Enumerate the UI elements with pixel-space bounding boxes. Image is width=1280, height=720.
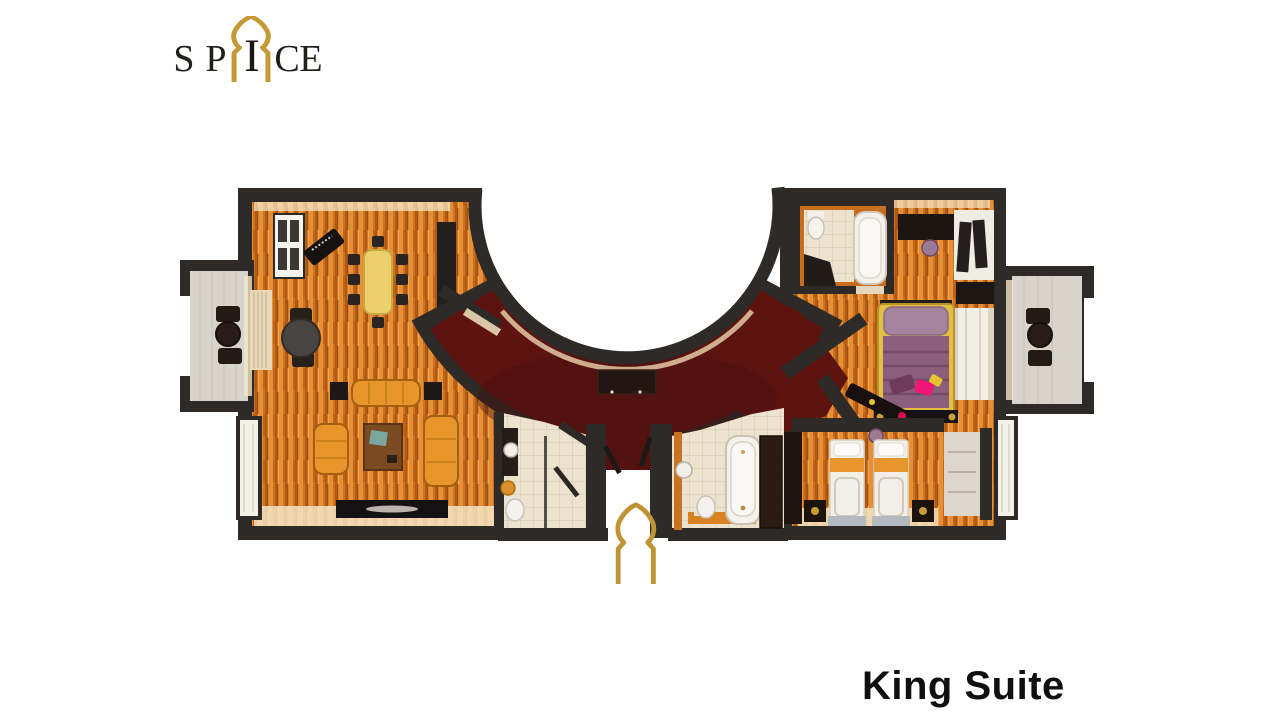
- balcony-right: [1004, 266, 1098, 414]
- desk: [898, 214, 956, 240]
- sink: [504, 443, 518, 457]
- closet: [944, 428, 992, 520]
- sink: [676, 462, 692, 478]
- balcony-chair: [216, 306, 240, 322]
- balcony-door-window: [952, 308, 994, 400]
- side-table: [424, 382, 442, 400]
- toilet: [506, 499, 524, 521]
- suite-name-label: King Suite: [862, 664, 1065, 709]
- twin-bed-2: [872, 440, 910, 526]
- sofa: [424, 416, 458, 486]
- page: S P I C E: [0, 0, 1280, 720]
- shower-screen: [544, 436, 547, 528]
- entrance-wall: [586, 424, 606, 538]
- floor-light-glow: [254, 202, 450, 211]
- side-table: [330, 382, 348, 400]
- right-wing-window: [994, 416, 1018, 520]
- corridor-console: [598, 370, 656, 394]
- balcony-opening: [176, 296, 190, 376]
- ensuite-bathroom: [792, 198, 894, 294]
- toilet: [808, 217, 824, 239]
- balcony-opening: [1084, 298, 1098, 382]
- stool: [501, 481, 515, 495]
- stool: [922, 240, 938, 256]
- sofa: [314, 424, 348, 474]
- wardrobe: [760, 436, 782, 528]
- courtyard-cutout: [481, 60, 773, 352]
- head-cushion: [884, 307, 948, 335]
- tv-cabinet: [956, 282, 994, 304]
- balcony-table: [216, 322, 240, 346]
- balcony-chair: [1026, 308, 1050, 324]
- wardrobe: [784, 432, 802, 524]
- balcony-table: [1028, 323, 1052, 347]
- entrance-arch-icon: [618, 505, 654, 584]
- toilet: [697, 496, 715, 518]
- coffee-table: [364, 424, 402, 470]
- floor-plan: [0, 0, 1280, 720]
- bedroom-divider-wall: [792, 418, 944, 432]
- dining-table: [364, 250, 392, 314]
- balcony-chair: [1028, 350, 1052, 366]
- duvet: [883, 336, 949, 408]
- round-table: [282, 319, 320, 357]
- balcony-left: [176, 260, 254, 412]
- window-bay: [240, 420, 258, 516]
- balcony-chair: [218, 348, 242, 364]
- twin-bed-1: [828, 440, 866, 526]
